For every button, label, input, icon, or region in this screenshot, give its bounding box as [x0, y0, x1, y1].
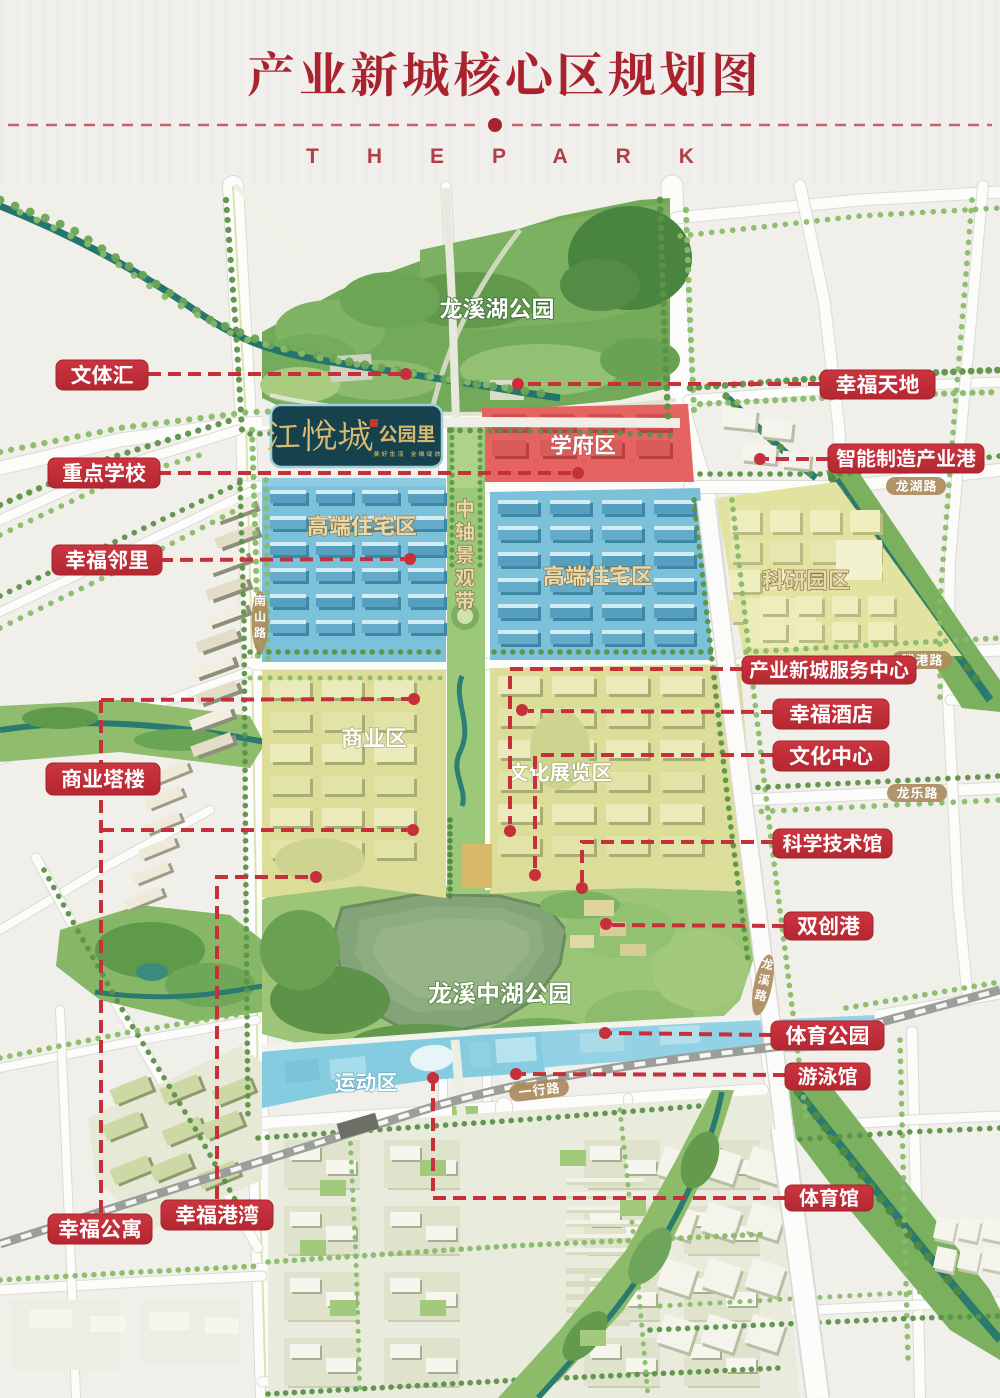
svg-text:THEPARK: THEPARK [306, 145, 742, 168]
